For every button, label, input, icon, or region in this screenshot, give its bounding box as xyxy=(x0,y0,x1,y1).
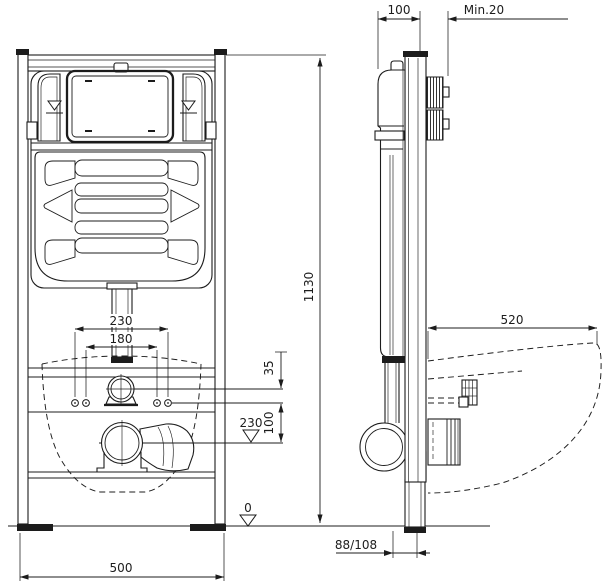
dim-bowl-depth: 520 xyxy=(428,313,597,359)
drain-sleeve xyxy=(428,419,460,465)
wall-bracket xyxy=(427,77,449,140)
side-foot xyxy=(404,480,426,533)
dim-frame-depth-label: 100 xyxy=(388,3,411,17)
arrow-left-icon xyxy=(417,550,426,556)
dim-supply-offset-label: 35 xyxy=(262,360,276,375)
dim-supply-offset: 35 xyxy=(262,352,287,388)
dim-drain-wall-offset-label: 88/108 xyxy=(335,538,377,552)
dim-holes-outer-label: 230 xyxy=(110,314,133,328)
dim-wall-clearance: Min.20 xyxy=(448,3,568,76)
right-foot-plate xyxy=(190,524,226,531)
frame-left-post xyxy=(18,50,28,524)
technical-drawing-page: 1130 500 230 180 xyxy=(0,0,608,583)
arrow-right-icon xyxy=(384,550,393,556)
side-drain-elbow xyxy=(360,423,408,471)
water-supply-connection xyxy=(104,374,138,405)
dim-drain-offset: 100 xyxy=(262,404,281,442)
side-foot-plate xyxy=(404,527,426,533)
cistern-step xyxy=(375,131,404,140)
frame-right-post xyxy=(215,50,225,524)
side-frame-post xyxy=(403,51,428,482)
ribbed-fitting xyxy=(459,380,477,407)
dim-frame-width: 500 xyxy=(20,533,224,581)
right-clip xyxy=(206,122,216,139)
level-triangle-icon xyxy=(240,515,256,526)
level-mark-drain: 230 xyxy=(240,416,263,442)
wc-frame-installation-drawing: 1130 500 230 180 xyxy=(0,0,608,583)
dim-drain-offset-label: 100 xyxy=(262,412,276,435)
side-pipe-coupling xyxy=(382,356,405,363)
left-post-cap xyxy=(16,49,29,55)
left-clip xyxy=(27,122,37,139)
flush-button-side xyxy=(391,61,403,70)
dim-wall-clearance-label: Min.20 xyxy=(464,3,504,17)
front-view xyxy=(16,49,283,531)
side-cistern xyxy=(375,61,405,423)
flush-pipe-coupling xyxy=(111,357,133,363)
dim-height-label: 1130 xyxy=(302,272,316,303)
bowl-outline-side xyxy=(428,343,601,493)
dim-width-label: 500 xyxy=(110,561,133,575)
dim-overall-height: 1130 xyxy=(226,55,326,523)
dim-holes-inner-label: 180 xyxy=(110,332,133,346)
level-triangle-icon xyxy=(243,430,259,442)
side-post-cap xyxy=(403,51,428,57)
level-mark-floor: 0 xyxy=(240,501,256,526)
side-view xyxy=(360,51,601,533)
level-floor-label: 0 xyxy=(244,501,252,515)
right-post-cap xyxy=(214,49,227,55)
level-drain-label: 230 xyxy=(240,416,263,430)
dim-drain-wall-offset: 88/108 xyxy=(335,531,430,558)
left-foot-plate xyxy=(17,524,53,531)
dim-bowl-depth-label: 520 xyxy=(501,313,524,327)
